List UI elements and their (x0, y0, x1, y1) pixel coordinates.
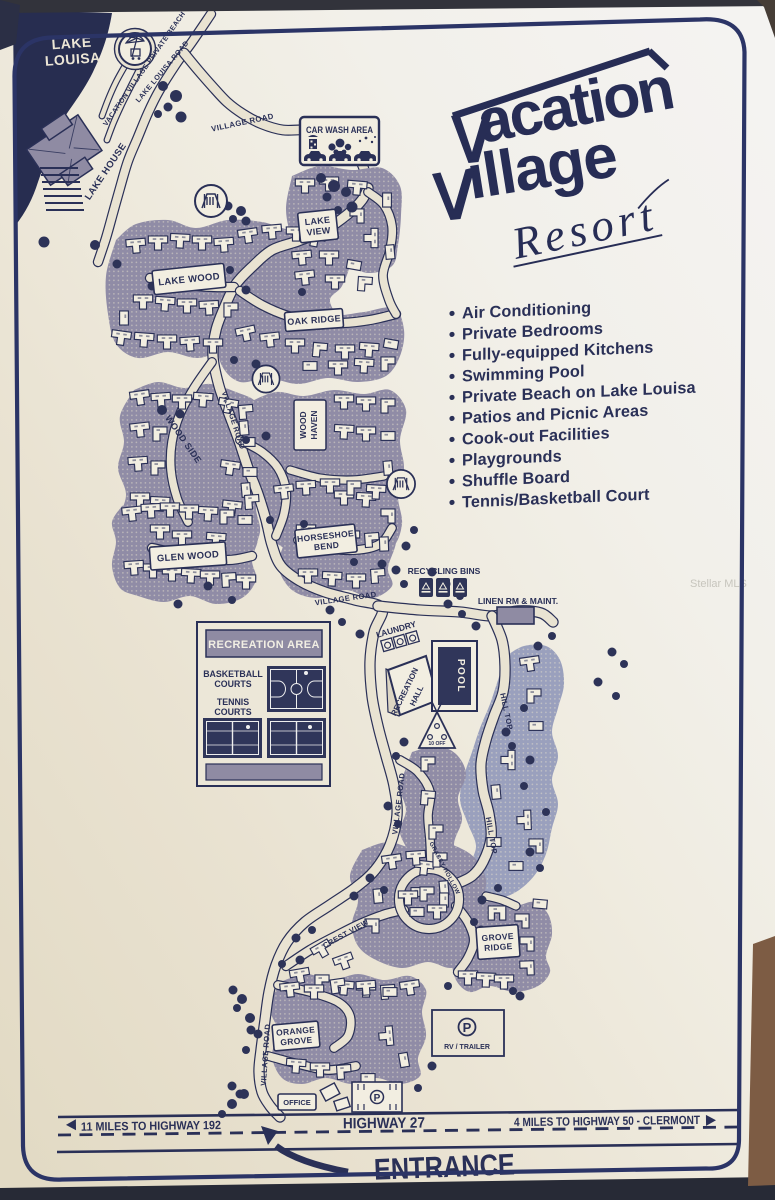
svg-text:RECREATION AREA: RECREATION AREA (208, 639, 320, 651)
svg-text:P: P (463, 1020, 472, 1035)
svg-text:BASKETBALL: BASKETBALL (203, 669, 263, 679)
svg-text:HIGHWAY 27: HIGHWAY 27 (343, 1115, 425, 1133)
svg-text:COURTS: COURTS (214, 679, 251, 689)
svg-text:HAVEN: HAVEN (309, 410, 319, 439)
svg-text:10 OFF: 10 OFF (429, 741, 446, 747)
svg-text:OFFICE: OFFICE (283, 1098, 311, 1107)
svg-text:RV / TRAILER: RV / TRAILER (444, 1044, 490, 1051)
svg-text:LINEN RM & MAINT.: LINEN RM & MAINT. (478, 596, 558, 606)
svg-text:CAR WASH AREA: CAR WASH AREA (306, 125, 373, 135)
svg-text:TENNIS: TENNIS (217, 697, 249, 707)
svg-text:WOOD: WOOD (298, 411, 308, 438)
svg-text:COURTS: COURTS (214, 707, 251, 717)
svg-text:11 MILES TO HIGHWAY 192: 11 MILES TO HIGHWAY 192 (81, 1118, 221, 1134)
svg-text:P: P (374, 1093, 381, 1104)
svg-text:POOL: POOL (455, 659, 466, 693)
svg-text:RIDGE: RIDGE (484, 941, 513, 953)
svg-text:ENTRANCE: ENTRANCE (373, 1148, 515, 1186)
svg-text:4 MILES TO HIGHWAY 50 - CLERMO: 4 MILES TO HIGHWAY 50 - CLERMONT (514, 1113, 701, 1129)
svg-text:Stellar MLS: Stellar MLS (690, 578, 747, 590)
svg-text:RECYCLING BINS: RECYCLING BINS (408, 566, 481, 576)
